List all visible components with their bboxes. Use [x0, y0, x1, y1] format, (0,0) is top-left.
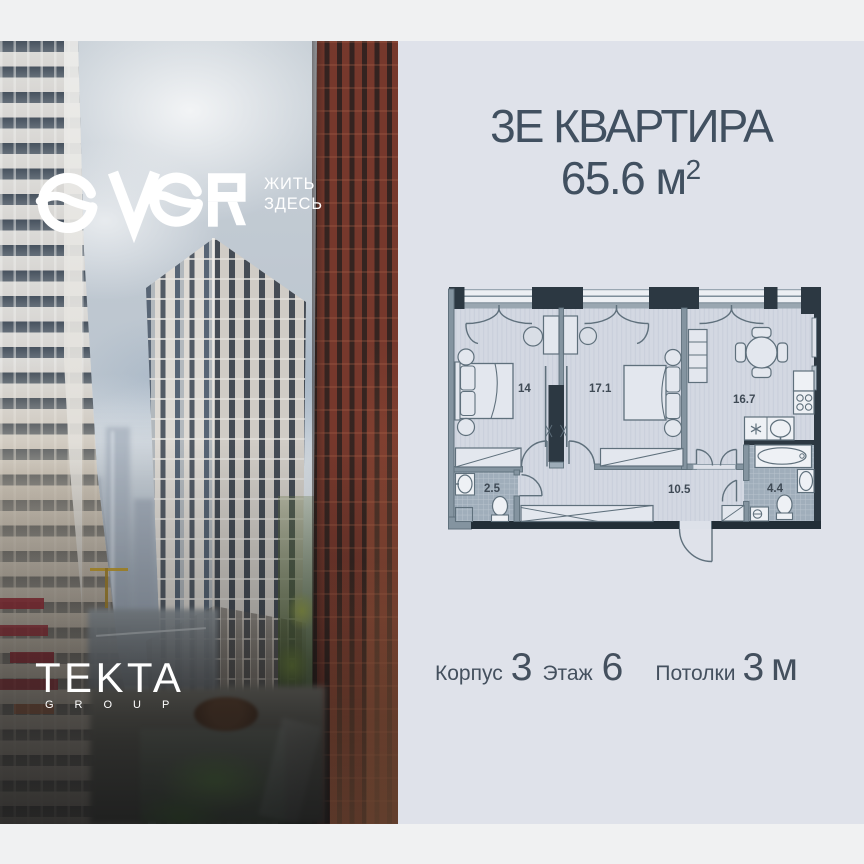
svg-text:TEKTA: TEKTA	[35, 654, 184, 701]
svg-text:10.5: 10.5	[668, 484, 691, 496]
svg-text:2.5: 2.5	[484, 483, 501, 495]
svg-text:GROUP: GROUP	[45, 699, 190, 711]
svg-text:ЖИТЬ: ЖИТЬ	[264, 175, 315, 193]
svg-text:17.1: 17.1	[589, 383, 612, 395]
svg-text:16.7: 16.7	[733, 394, 755, 406]
svg-text:4.4: 4.4	[767, 483, 784, 495]
svg-text:ЗДЕСЬ: ЗДЕСЬ	[264, 195, 323, 213]
svg-text:14: 14	[518, 383, 531, 395]
